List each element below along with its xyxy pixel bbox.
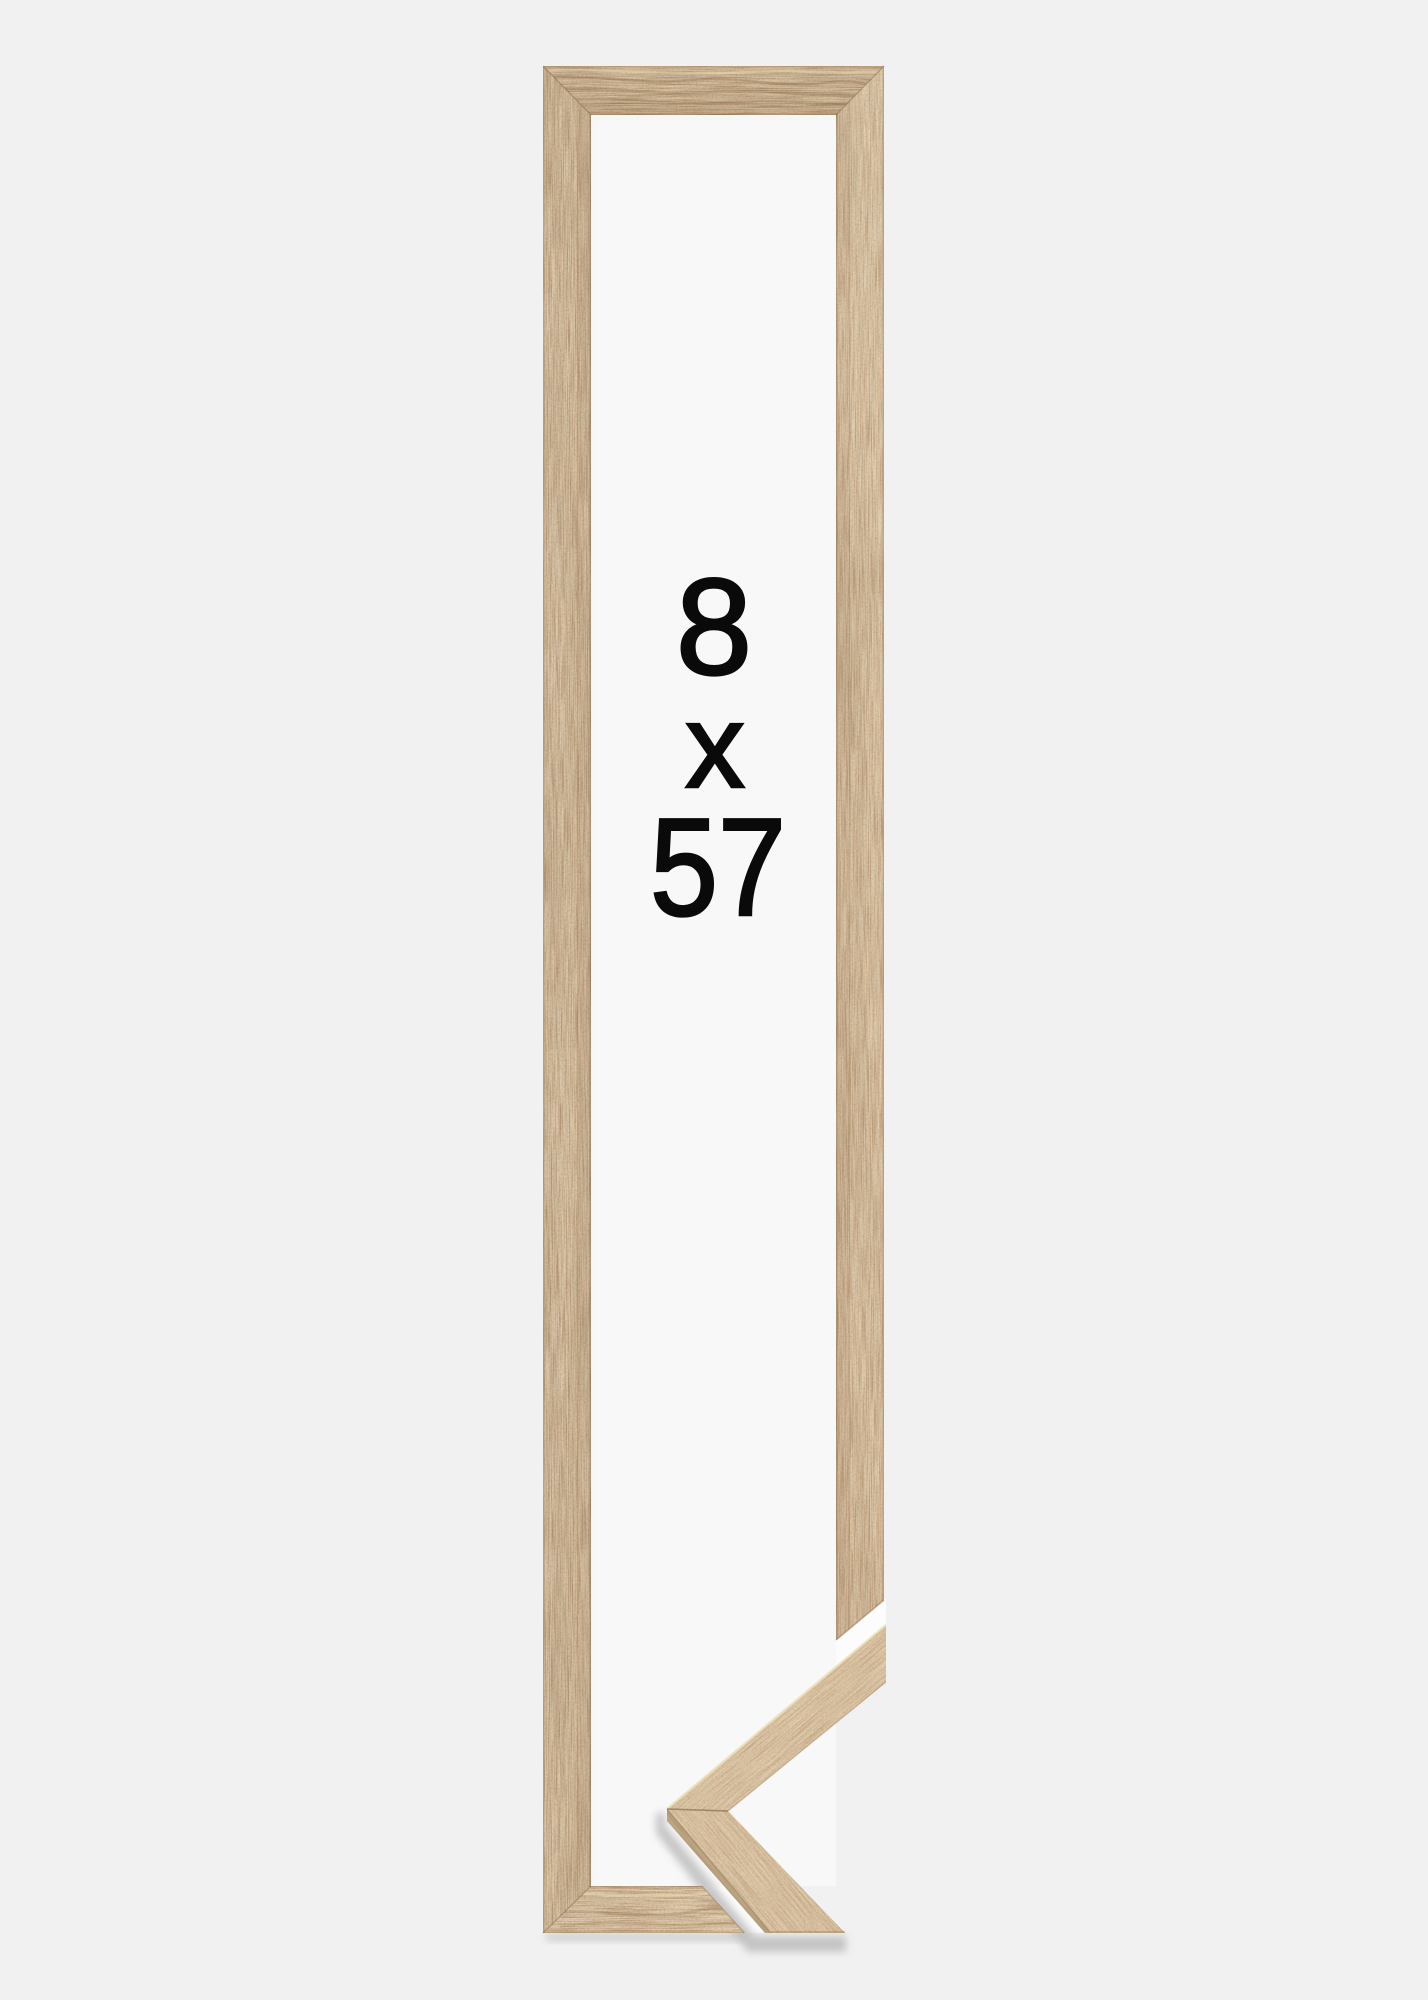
- svg-text:57: 57: [650, 790, 786, 945]
